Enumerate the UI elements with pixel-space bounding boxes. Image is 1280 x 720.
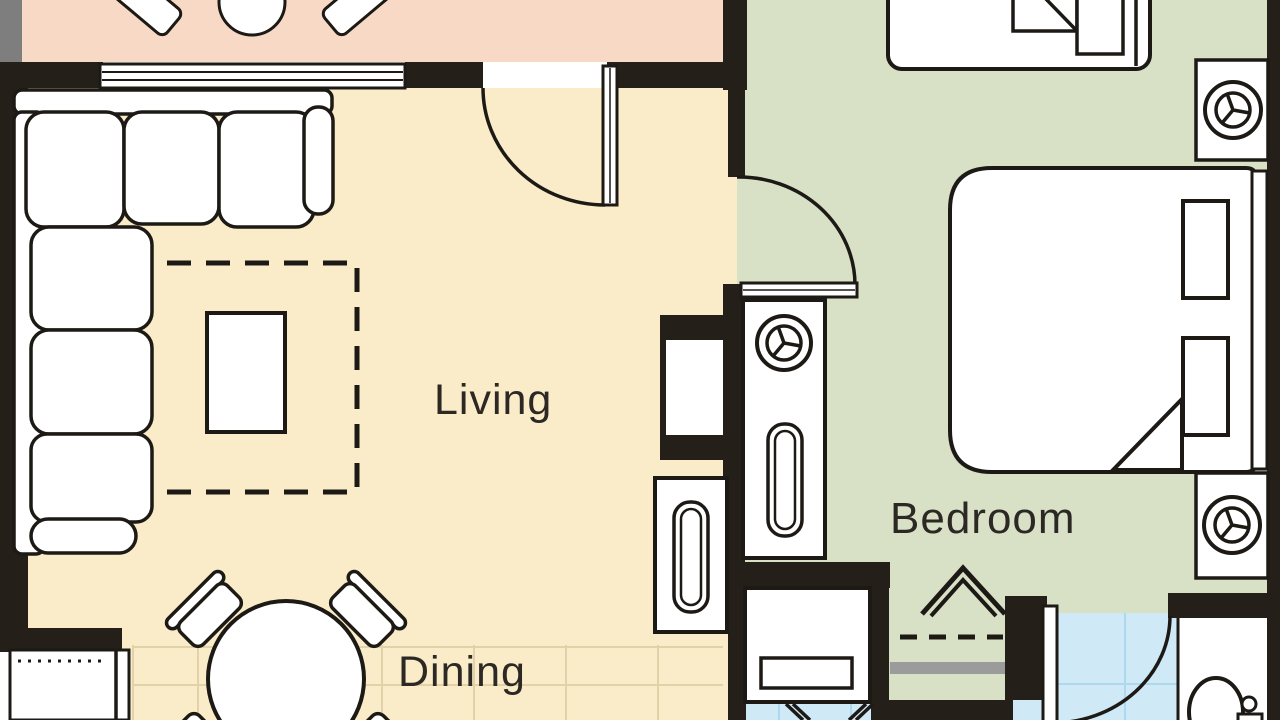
sofa-armrest-right xyxy=(304,107,333,214)
wall-closet-left xyxy=(871,588,889,702)
wall-niche-lip xyxy=(660,315,666,460)
living-label: Living xyxy=(434,376,552,425)
bathroom-floor xyxy=(1047,613,1178,720)
sofa-cushion xyxy=(124,112,219,224)
wall-hall xyxy=(728,562,890,588)
wall-bedroom-bottom xyxy=(1168,593,1267,618)
dining-label: Dining xyxy=(398,648,526,697)
bed xyxy=(950,168,1267,472)
wall-niche-arm-bottom xyxy=(660,435,725,460)
wall-closet-bottom xyxy=(871,700,1013,720)
nightstand xyxy=(1196,473,1268,578)
wall-balcony-column xyxy=(723,0,747,90)
exterior-strip xyxy=(0,0,22,62)
wall-niche xyxy=(666,340,723,435)
living-tv-console xyxy=(655,478,727,632)
dresser-drawer xyxy=(761,658,852,688)
sofa-cushion xyxy=(219,112,314,227)
coffee-table xyxy=(207,313,285,432)
door-leaf xyxy=(1043,606,1057,720)
sofa-cushion xyxy=(31,330,152,434)
wall-niche-arm-top xyxy=(660,315,725,340)
wall-top-a xyxy=(0,62,103,88)
window xyxy=(100,64,405,88)
pillow xyxy=(1183,338,1228,435)
sofa-cushion xyxy=(31,434,152,522)
bedroom-label: Bedroom xyxy=(890,494,1076,544)
sleeper-chair xyxy=(888,0,1150,69)
kitchen-counter xyxy=(10,650,129,720)
headboard xyxy=(1252,171,1267,469)
wall-kitchen-corner xyxy=(0,628,122,652)
dresser xyxy=(745,588,870,702)
balcony-furniture xyxy=(112,0,391,37)
pillow xyxy=(1183,201,1228,298)
side-table xyxy=(1196,60,1268,160)
sofa-armrest-bottom xyxy=(31,519,136,553)
wall-top-c xyxy=(607,62,723,88)
floor-plan: Living Dining Bedroom xyxy=(0,0,1280,720)
wall-bath-left xyxy=(1005,596,1047,700)
sofa-cushion xyxy=(31,227,152,330)
wall-divider-upper xyxy=(728,88,745,177)
lamp-icon xyxy=(757,316,811,370)
lamp-icon xyxy=(1205,82,1261,138)
folded-linen-icon xyxy=(1013,0,1077,31)
floor-plan-drawing xyxy=(0,0,1280,720)
lamp-icon xyxy=(1204,497,1260,553)
wall-top-b xyxy=(405,62,483,88)
bedroom-console xyxy=(743,300,825,558)
sofa-cushion xyxy=(26,112,124,227)
closet-threshold xyxy=(890,662,1005,674)
